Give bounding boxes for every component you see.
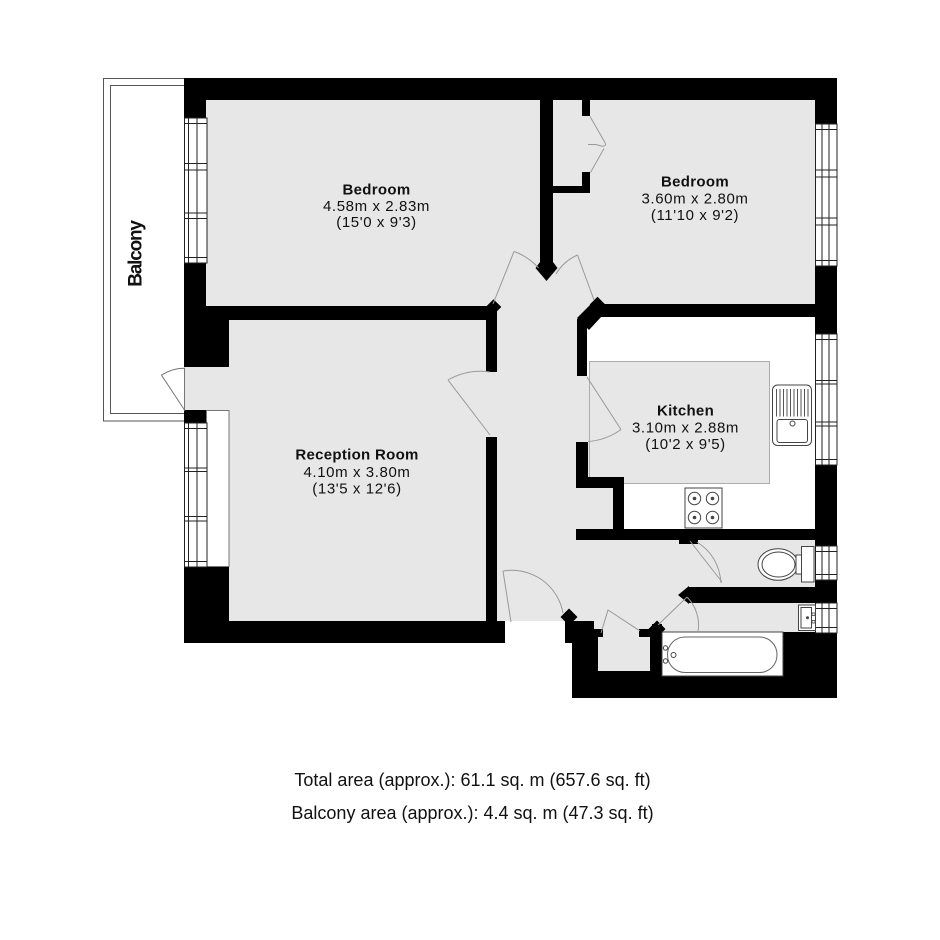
svg-text:Balcony: Balcony <box>126 220 147 287</box>
svg-text:4.58m x 2.83m: 4.58m x 2.83m <box>323 198 430 215</box>
svg-text:Bedroom: Bedroom <box>343 182 411 199</box>
svg-text:4.10m x 3.80m: 4.10m x 3.80m <box>303 464 410 481</box>
svg-text:(15'0 x 9'3): (15'0 x 9'3) <box>336 214 416 231</box>
svg-text:Balcony area (approx.): 4.4 sq: Balcony area (approx.): 4.4 sq. m (47.3 … <box>291 803 653 823</box>
svg-text:(13'5 x 12'6): (13'5 x 12'6) <box>312 481 401 498</box>
svg-text:3.10m x 2.88m: 3.10m x 2.88m <box>632 420 739 437</box>
svg-text:Reception Room: Reception Room <box>295 447 418 464</box>
svg-text:Bedroom: Bedroom <box>661 174 729 191</box>
svg-text:(10'2 x 9'5): (10'2 x 9'5) <box>645 436 725 453</box>
svg-text:3.60m x 2.80m: 3.60m x 2.80m <box>641 191 748 208</box>
svg-text:Kitchen: Kitchen <box>657 403 714 420</box>
svg-text:(11'10 x 9'2): (11'10 x 9'2) <box>651 207 739 224</box>
svg-text:Total area (approx.): 61.1 sq.: Total area (approx.): 61.1 sq. m (657.6 … <box>294 770 650 790</box>
